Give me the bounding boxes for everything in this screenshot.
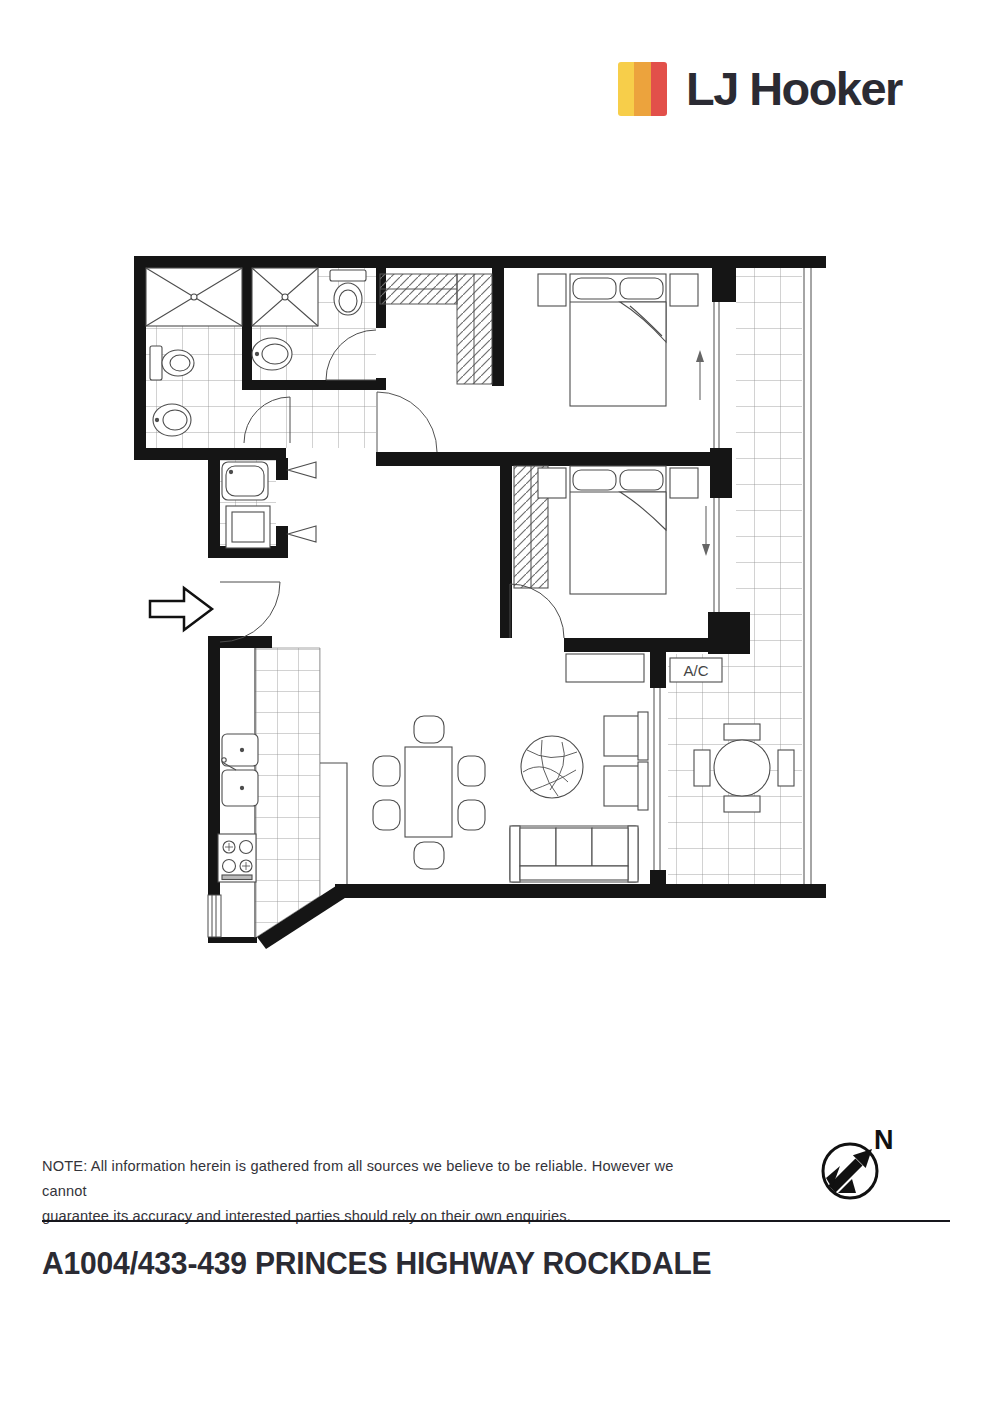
balcony-door-arrow (702, 506, 710, 556)
north-arrow-icon (826, 1149, 872, 1193)
bedside-table (538, 274, 566, 306)
disclaimer-note: NOTE: All information herein is gathered… (42, 1154, 722, 1229)
dining-table (405, 747, 452, 837)
entry-door (220, 582, 280, 642)
balcony-chair (694, 750, 710, 786)
logo-stripes-icon (618, 62, 667, 116)
brand-name: LJ Hooker (686, 62, 902, 116)
balcony-door-arrow (696, 350, 704, 400)
bifold-door-mark (288, 526, 316, 542)
balcony-chair (724, 724, 760, 740)
ac-label: A/C (683, 662, 708, 679)
dining-chair (414, 842, 444, 869)
bed-2 (570, 466, 666, 594)
basin-2 (252, 338, 292, 370)
living-area (510, 654, 648, 882)
bedroom-2 (510, 466, 710, 638)
shower-2 (252, 268, 318, 326)
bedroom-1-door (377, 392, 437, 452)
dining-area (373, 716, 485, 869)
tv-unit (566, 654, 644, 682)
property-address: A1004/433-439 PRINCES HIGHWAY ROCKDALE (42, 1246, 711, 1282)
stripe-red (651, 62, 667, 116)
divider-line (42, 1220, 950, 1222)
bedside-table (538, 468, 566, 498)
entry-arrow-icon (150, 588, 212, 630)
sofa (510, 826, 638, 882)
bedside-table (670, 274, 698, 306)
floor-plan: A/C (130, 250, 830, 950)
washing-machine (226, 506, 270, 548)
stripe-yellow (618, 62, 634, 116)
entry (150, 582, 280, 642)
basin-1 (153, 404, 191, 436)
armchair (604, 762, 648, 810)
floor-plan-flyer: LJ Hooker (0, 0, 1000, 1425)
armchair (604, 712, 648, 760)
cooktop (218, 834, 256, 882)
rug (521, 736, 583, 798)
kitchen-sink (222, 734, 258, 806)
bench-return (320, 763, 347, 884)
balcony-chair (778, 750, 794, 786)
dining-chair (458, 800, 485, 830)
bed-1 (570, 274, 666, 406)
lj-hooker-logo: LJ Hooker (618, 62, 897, 116)
stripe-amber (634, 62, 650, 116)
north-compass: N (812, 1116, 912, 1211)
note-line-1: NOTE: All information herein is gathered… (42, 1158, 674, 1199)
north-label: N (874, 1125, 894, 1155)
dining-chair (458, 756, 485, 786)
balcony-chair (724, 796, 760, 812)
shower-1 (146, 268, 242, 326)
bedroom-2-door (510, 584, 564, 638)
bedroom-1 (538, 274, 704, 406)
dining-chair (414, 716, 444, 743)
dining-chair (373, 756, 400, 786)
ac-unit: A/C (670, 658, 722, 682)
robe-bedroom-1 (377, 274, 492, 452)
laundry-tub (222, 462, 268, 500)
dining-chair (373, 800, 400, 830)
balcony-table (714, 740, 770, 796)
bedside-table (670, 468, 698, 498)
bifold-door-mark (288, 462, 316, 478)
